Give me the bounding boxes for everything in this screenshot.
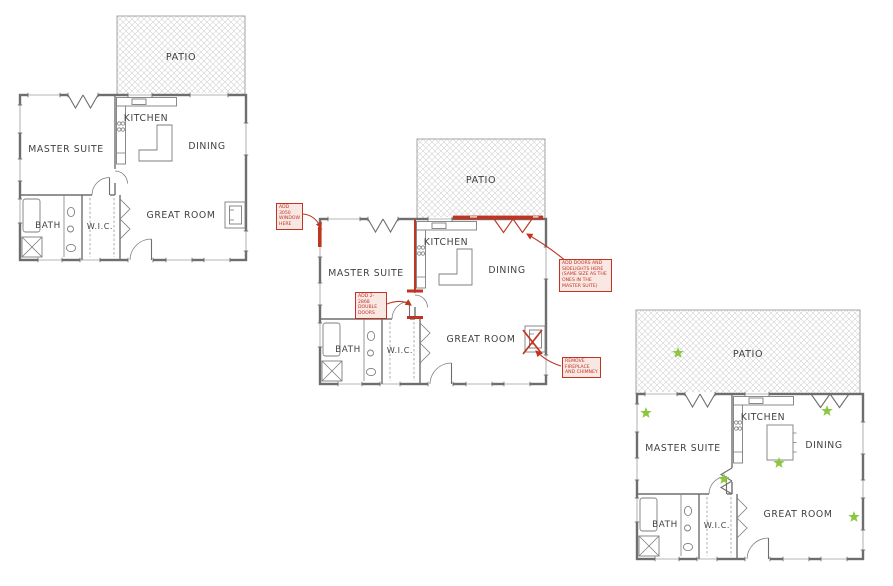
floor-plan-revised — [635, 310, 865, 561]
annotation-add-window: ADD 3050 WINDOW HERE — [276, 203, 303, 230]
annotation-remove-fireplace: REMOVE FIREPLACE AND CHIMNEY — [562, 357, 601, 378]
annotation-add-double-doors: ADD 2-2868 DOUBLE DOORS — [355, 292, 387, 319]
window — [861, 480, 865, 498]
markup-new-wall-opening — [453, 216, 543, 220]
annotation-add-doors-sidelights: ADD DOORS AND SIDELIGHTS HERE (SAME SIZE… — [559, 259, 612, 292]
markup-new-window — [318, 227, 322, 247]
floor-plan-canvas: PATIO PATIO — [0, 0, 893, 586]
markup-door-jamb — [407, 290, 423, 293]
floor-plan-original — [18, 16, 248, 262]
floor-plans-drawing: PATIO PATIO — [0, 0, 893, 586]
leader-arrow-window — [303, 214, 321, 228]
floor-plan-annotated — [303, 139, 567, 386]
markup-door-jamb — [407, 316, 423, 319]
dining-window — [190, 93, 228, 97]
